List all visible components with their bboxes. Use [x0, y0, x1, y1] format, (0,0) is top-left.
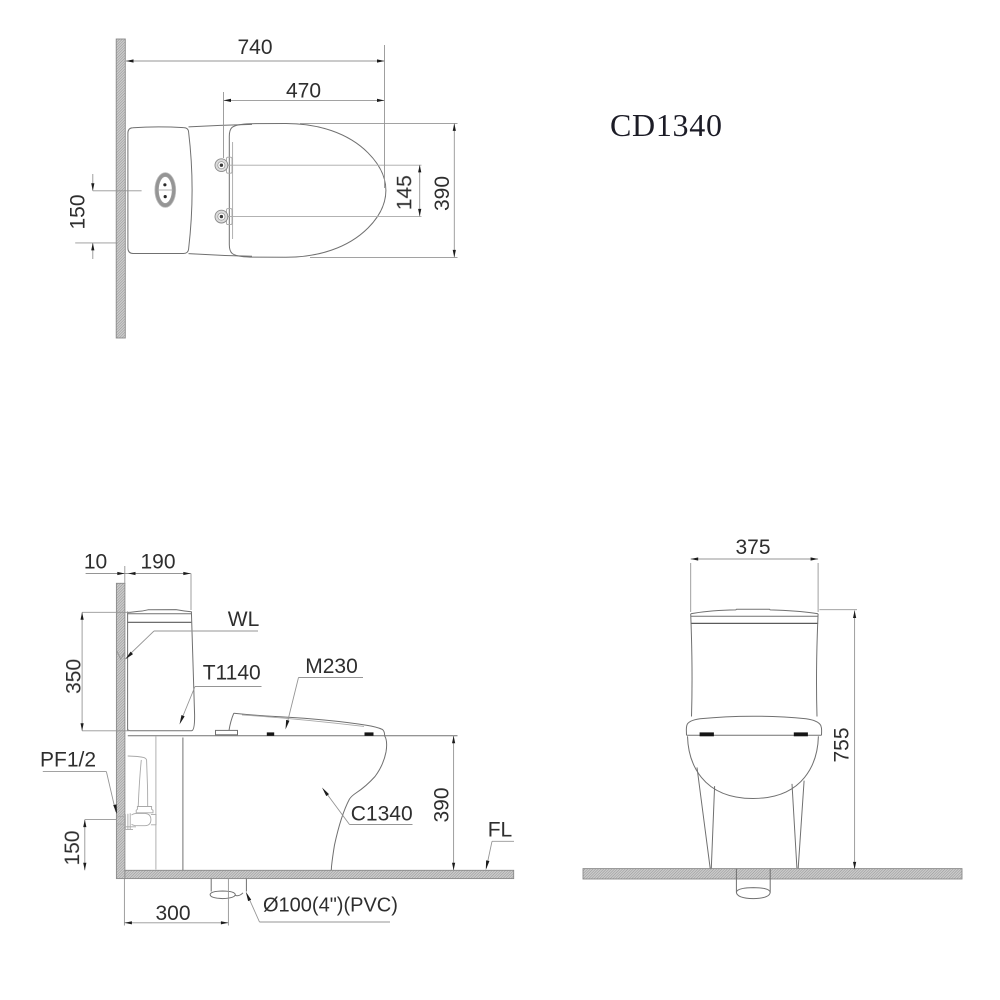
svg-text:145: 145 [394, 175, 417, 210]
svg-text:CD1340: CD1340 [610, 107, 723, 143]
svg-text:150: 150 [67, 194, 90, 229]
svg-text:WL: WL [228, 608, 260, 631]
svg-text:150: 150 [61, 830, 84, 865]
svg-text:300: 300 [155, 902, 190, 925]
svg-text:Ø100(4")(PVC): Ø100(4")(PVC) [263, 895, 398, 917]
svg-text:PF1/2: PF1/2 [40, 749, 96, 772]
svg-text:755: 755 [831, 727, 854, 762]
svg-text:390: 390 [431, 176, 454, 211]
svg-text:190: 190 [140, 551, 175, 574]
svg-text:390: 390 [431, 787, 454, 822]
svg-text:350: 350 [62, 659, 85, 694]
svg-text:375: 375 [735, 536, 770, 559]
svg-text:740: 740 [237, 36, 272, 59]
svg-text:470: 470 [286, 80, 321, 103]
svg-text:M230: M230 [305, 655, 358, 678]
svg-text:C1340: C1340 [351, 803, 413, 826]
svg-text:FL: FL [488, 819, 513, 842]
svg-text:10: 10 [84, 551, 107, 574]
svg-text:T1140: T1140 [203, 662, 261, 685]
